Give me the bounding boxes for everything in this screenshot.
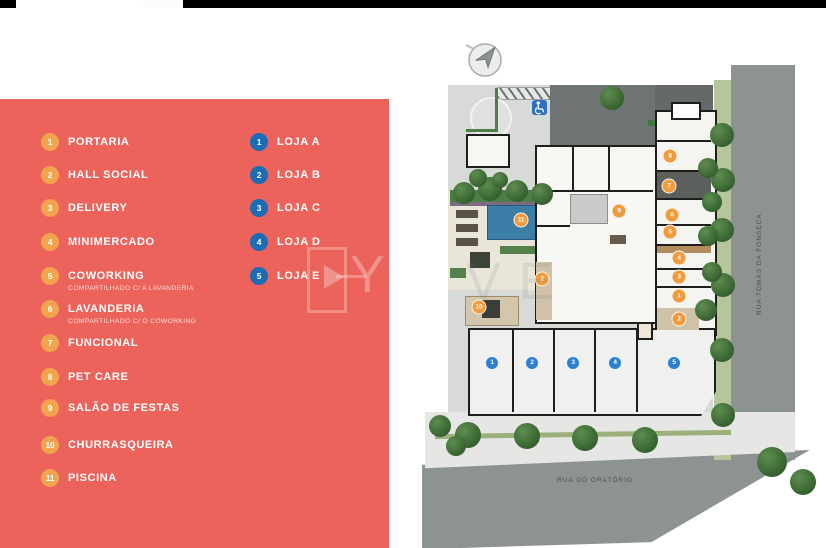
loja-marker-5: 5 xyxy=(667,356,681,370)
legend-item-pet-care: 8PET CARE xyxy=(41,368,128,386)
watermark-plan-letters: VE xyxy=(466,252,571,312)
tree-icon xyxy=(702,192,722,212)
amenity-number-badge: 10 xyxy=(41,436,59,454)
legend-item-label: FUNCIONAL xyxy=(68,334,138,352)
tree-icon xyxy=(695,299,717,321)
loja-divider xyxy=(636,328,638,412)
legend-item-portaria: 1PORTARIA xyxy=(41,133,129,151)
legend-item-label: HALL SOCIAL xyxy=(68,166,148,184)
loja-marker-2: 2 xyxy=(525,356,539,370)
legend-item-sublabel: COMPARTILHADO C/ A LAVANDERIA xyxy=(68,285,194,292)
top-bar-gap-light xyxy=(143,0,183,8)
legend-item-label: COWORKING xyxy=(68,267,194,285)
tree-icon xyxy=(572,425,598,451)
amenity-number-badge: 5 xyxy=(41,267,59,285)
hedge-line-horizontal xyxy=(466,129,497,132)
planter xyxy=(450,268,466,278)
tree-icon xyxy=(698,226,718,246)
legend-item-minimercado: 4MINIMERCADO xyxy=(41,233,155,251)
legend-item-delivery: 3DELIVERY xyxy=(41,199,127,217)
turning-circle xyxy=(470,97,512,139)
amenity-number-badge: 4 xyxy=(41,233,59,251)
legend-item-loja-c: 3LOJA C xyxy=(250,199,321,217)
legend-item-label: PISCINA xyxy=(68,469,117,487)
legend-item-hall-social: 2HALL SOCIAL xyxy=(41,166,148,184)
legend-item-lavanderia: 6LAVANDERIACOMPARTILHADO C/ O COWORKING xyxy=(41,300,196,325)
tree-icon xyxy=(506,180,528,202)
lojas-row xyxy=(468,328,716,416)
legend-item-loja-a: 1LOJA A xyxy=(250,133,320,151)
tree-icon xyxy=(790,469,816,495)
legend-item-label: PET CARE xyxy=(68,368,128,386)
amenity-marker-4: 4 xyxy=(672,251,687,266)
loja-number-badge: 3 xyxy=(250,199,268,217)
tree-icon xyxy=(600,86,624,110)
legend-item-label: MINIMERCADO xyxy=(68,233,155,251)
legend-item-sal-o-de-festas: 9SALÃO DE FESTAS xyxy=(41,399,179,417)
legend-item-funcional: 7FUNCIONAL xyxy=(41,334,138,352)
loja-number-badge: 5 xyxy=(250,267,268,285)
top-bar-segment-right xyxy=(183,0,826,8)
loja-legend-column: 1LOJA A2LOJA B3LOJA C4LOJA D5LOJA E xyxy=(250,99,380,548)
amenity-marker-8: 8 xyxy=(663,149,678,164)
amenity-marker-11: 11 xyxy=(514,213,529,228)
amenity-legend-column: 1PORTARIA2HALL SOCIAL3DELIVERY4MINIMERCA… xyxy=(41,99,241,548)
amenity-number-badge: 11 xyxy=(41,469,59,487)
amenity-marker-3: 3 xyxy=(672,270,687,285)
legend-item-loja-b: 2LOJA B xyxy=(250,166,321,184)
legend-item-label: DELIVERY xyxy=(68,199,127,217)
street-label-bottom: RUA DO ORATÓRIO xyxy=(530,477,660,484)
canopy xyxy=(671,102,701,120)
legend-item-label: PORTARIA xyxy=(68,133,129,151)
tree-icon xyxy=(429,415,451,437)
site-plan: RUA TOMÁS DA FONSECA RUA DO ORATÓRIO VE … xyxy=(420,30,826,548)
legend-item-piscina: 11PISCINA xyxy=(41,469,117,487)
legend-item-coworking: 5COWORKINGCOMPARTILHADO C/ A LAVANDERIA xyxy=(41,267,194,292)
table xyxy=(610,235,626,244)
loja-divider xyxy=(594,328,596,412)
tree-icon xyxy=(514,423,540,449)
amenity-number-badge: 3 xyxy=(41,199,59,217)
loja-number-badge: 2 xyxy=(250,166,268,184)
inner-wall xyxy=(657,140,711,142)
utility-room xyxy=(466,134,510,168)
tree-icon xyxy=(492,172,508,188)
lounge-chairs xyxy=(456,224,478,232)
loja-divider xyxy=(553,328,555,412)
page: { "legend": { "amenities": [ {"num":"1",… xyxy=(0,0,826,548)
tree-icon xyxy=(757,447,787,477)
street-label-right: RUA TOMÁS DA FONSECA xyxy=(756,145,768,315)
loja-divider xyxy=(512,328,514,412)
loja-entry xyxy=(637,322,653,340)
legend-item-churrasqueira: 10CHURRASQUEIRA xyxy=(41,436,174,454)
amenity-marker-7: 7 xyxy=(662,179,677,194)
amenity-marker-9: 9 xyxy=(612,204,627,219)
amenity-marker-1: 1 xyxy=(672,289,687,304)
legend-item-label: LOJA B xyxy=(277,166,321,184)
lounge-chairs xyxy=(456,210,478,218)
top-bar-segment-left xyxy=(0,0,16,8)
inner-wall xyxy=(608,145,610,190)
amenity-marker-6: 6 xyxy=(665,208,680,223)
tree-icon xyxy=(710,123,734,147)
legend-item-label: CHURRASQUEIRA xyxy=(68,436,174,454)
amenity-number-badge: 9 xyxy=(41,399,59,417)
amenity-number-badge: 8 xyxy=(41,368,59,386)
loja-marker-4: 4 xyxy=(608,356,622,370)
elevator-core xyxy=(570,194,608,224)
north-compass-icon xyxy=(458,35,510,83)
legend-item-label: LOJA C xyxy=(277,199,321,217)
tree-icon xyxy=(632,427,658,453)
amenity-number-badge: 7 xyxy=(41,334,59,352)
tree-icon xyxy=(446,436,466,456)
top-bar-gap xyxy=(16,0,143,8)
amenity-number-badge: 6 xyxy=(41,300,59,318)
loja-marker-1: 1 xyxy=(485,356,499,370)
loja-number-badge: 4 xyxy=(250,233,268,251)
amenity-number-badge: 2 xyxy=(41,166,59,184)
legend-panel: 1PORTARIA2HALL SOCIAL3DELIVERY4MINIMERCA… xyxy=(0,99,389,548)
legend-item-label: LOJA A xyxy=(277,133,320,151)
amenity-marker-2: 2 xyxy=(672,312,687,327)
tree-icon xyxy=(531,183,553,205)
inner-wall xyxy=(535,225,570,227)
inner-wall xyxy=(657,286,711,288)
tree-icon xyxy=(710,338,734,362)
hedge-line-vertical xyxy=(495,88,498,132)
inner-wall xyxy=(572,145,574,190)
accessible-parking-icon xyxy=(532,100,547,115)
legend-item-sublabel: COMPARTILHADO C/ O COWORKING xyxy=(68,318,196,325)
amenity-marker-5: 5 xyxy=(663,225,678,240)
tree-icon xyxy=(711,403,735,427)
loja-marker-3: 3 xyxy=(566,356,580,370)
loja-number-badge: 1 xyxy=(250,133,268,151)
lounge-chairs xyxy=(456,238,478,246)
tree-icon xyxy=(698,158,718,178)
tree-icon xyxy=(469,169,487,187)
amenity-number-badge: 1 xyxy=(41,133,59,151)
watermark-letter: Y xyxy=(350,249,385,301)
legend-item-label: SALÃO DE FESTAS xyxy=(68,399,179,417)
tree-icon xyxy=(453,182,475,204)
tree-icon xyxy=(702,262,722,282)
legend-item-label: LAVANDERIA xyxy=(68,300,196,318)
